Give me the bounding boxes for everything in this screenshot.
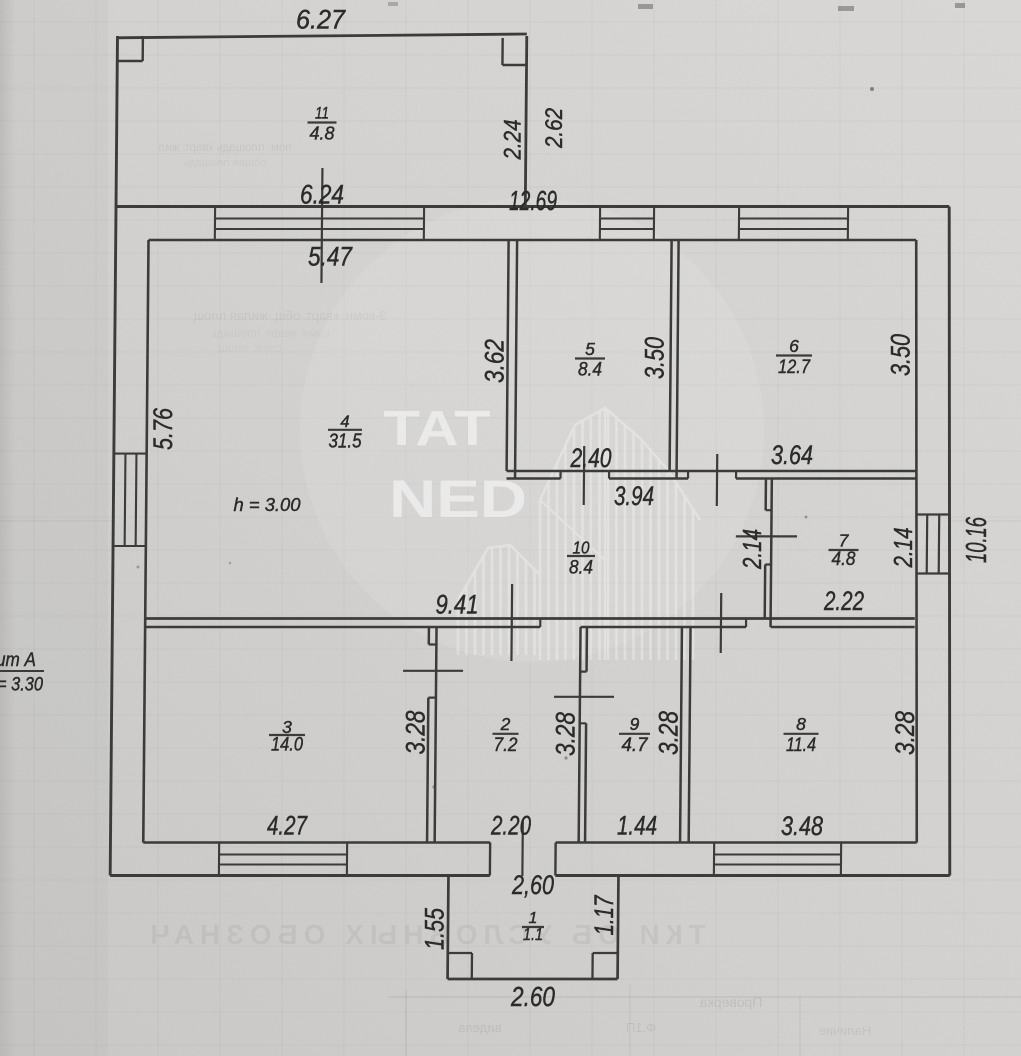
- svg-text:1.55: 1.55: [420, 907, 450, 950]
- svg-text:12.69: 12.69: [509, 185, 557, 216]
- svg-text:= 3.30: = 3.30: [0, 675, 43, 696]
- svg-text:TAT: TAT: [384, 402, 491, 456]
- svg-text:Ф.1П: Ф.1П: [626, 1020, 656, 1035]
- svg-text:2.20: 2.20: [490, 811, 531, 841]
- svg-text:1.44: 1.44: [617, 811, 657, 841]
- svg-text:3.28: 3.28: [551, 712, 581, 756]
- svg-text:2.40: 2.40: [570, 443, 612, 473]
- svg-text:2.14: 2.14: [737, 529, 767, 570]
- svg-text:4.8: 4.8: [832, 549, 856, 570]
- svg-text:8: 8: [796, 714, 806, 734]
- svg-text:8.4: 8.4: [578, 360, 602, 381]
- svg-text:3.50: 3.50: [640, 337, 670, 379]
- svg-text:31.5: 31.5: [329, 431, 363, 453]
- svg-text:пом. площадь кварт. жил: пом. площадь кварт. жил: [159, 142, 292, 154]
- svg-text:12.7: 12.7: [778, 357, 811, 378]
- svg-text:2.24: 2.24: [500, 120, 527, 161]
- svg-text:2.60: 2.60: [510, 981, 555, 1012]
- svg-text:2.22: 2.22: [823, 586, 864, 616]
- svg-text:2,60: 2,60: [511, 870, 554, 900]
- svg-text:7.2: 7.2: [494, 735, 518, 756]
- svg-text:NED: NED: [389, 470, 527, 529]
- svg-text:11: 11: [315, 104, 329, 123]
- svg-text:видела: видела: [458, 1020, 502, 1035]
- svg-text:2: 2: [500, 714, 511, 734]
- svg-text:6.27: 6.27: [296, 5, 346, 35]
- svg-text:4.8: 4.8: [310, 123, 336, 144]
- svg-text:5.76: 5.76: [148, 407, 178, 450]
- svg-text:Наличие: Наличие: [819, 1023, 872, 1038]
- svg-text:1.17: 1.17: [589, 895, 619, 936]
- svg-text:h = 3.00: h = 3.00: [234, 494, 302, 515]
- svg-text:10.16: 10.16: [961, 516, 993, 563]
- svg-text:6: 6: [789, 336, 799, 356]
- svg-text:4.7: 4.7: [622, 735, 649, 756]
- svg-text:2.62: 2.62: [541, 108, 568, 149]
- svg-text:14.0: 14.0: [271, 735, 303, 756]
- svg-text:комн. кварт. площадь: комн. кварт. площадь: [210, 326, 329, 340]
- svg-text:3.64: 3.64: [771, 440, 813, 470]
- svg-text:9: 9: [630, 714, 640, 734]
- svg-text:Проверка: Проверка: [699, 994, 762, 1010]
- svg-text:7: 7: [839, 531, 850, 551]
- svg-text:общая площадь: общая площадь: [183, 157, 266, 169]
- svg-text:3.50: 3.50: [886, 334, 916, 376]
- svg-text:3.94: 3.94: [614, 481, 654, 511]
- svg-text:3.28: 3.28: [401, 711, 431, 755]
- svg-text:9.41: 9.41: [436, 590, 479, 620]
- svg-text:3.62: 3.62: [480, 339, 510, 383]
- svg-text:8.4: 8.4: [569, 558, 593, 579]
- svg-text:11.4: 11.4: [786, 735, 816, 756]
- svg-text:1.1: 1.1: [523, 924, 543, 944]
- svg-text:10: 10: [573, 538, 590, 558]
- svg-text:5.47: 5.47: [308, 242, 353, 272]
- svg-text:4: 4: [340, 413, 349, 431]
- svg-text:2.14: 2.14: [888, 528, 918, 569]
- svg-text:6.24: 6.24: [300, 180, 344, 210]
- svg-text:3.28: 3.28: [890, 711, 920, 755]
- svg-text:ит А: ит А: [0, 650, 36, 671]
- svg-text:служ. площ: служ. площ: [218, 341, 282, 355]
- svg-text:3.28: 3.28: [654, 711, 684, 755]
- svg-text:3.48: 3.48: [781, 811, 823, 841]
- svg-text:5: 5: [585, 339, 595, 359]
- svg-text:4.27: 4.27: [267, 811, 308, 841]
